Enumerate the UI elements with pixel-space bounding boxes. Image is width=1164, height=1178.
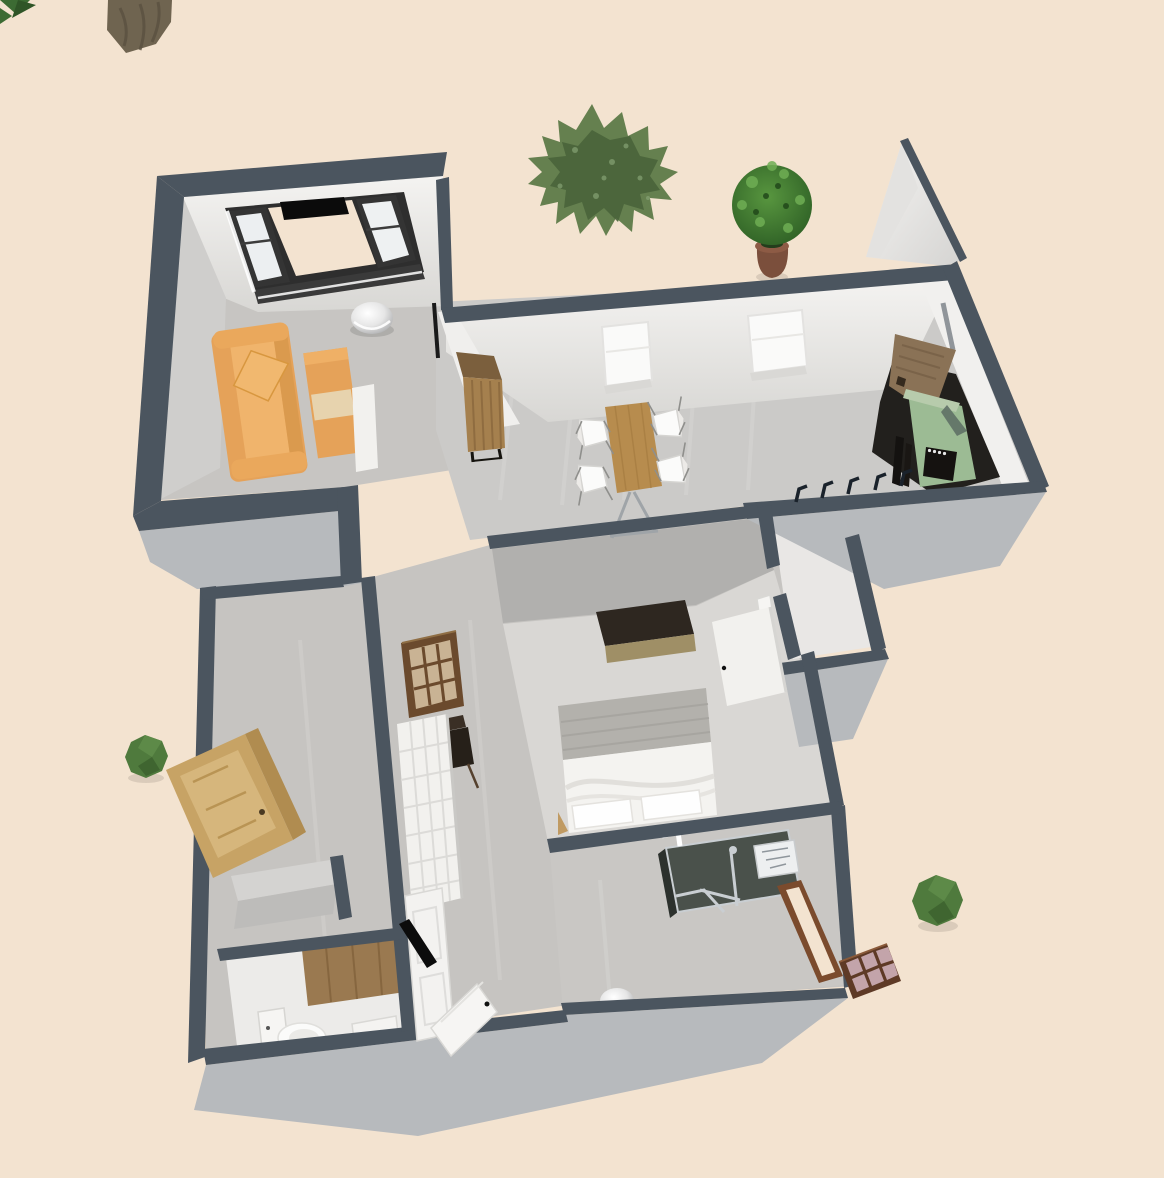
dining-window-right <box>748 310 807 381</box>
round-bush-left <box>125 735 168 783</box>
double-bed <box>558 688 717 835</box>
dining-window-left <box>602 322 652 394</box>
floorplan-3d-view <box>0 0 1164 1178</box>
wall-living-bottom-corner <box>337 485 362 585</box>
floorplan-3d-viewport <box>0 0 1164 1178</box>
brown-lattice-window <box>401 631 464 718</box>
side-panel <box>352 384 378 472</box>
glass-dome-lamp-living <box>350 302 394 337</box>
washbasin-bathroom <box>754 840 799 878</box>
